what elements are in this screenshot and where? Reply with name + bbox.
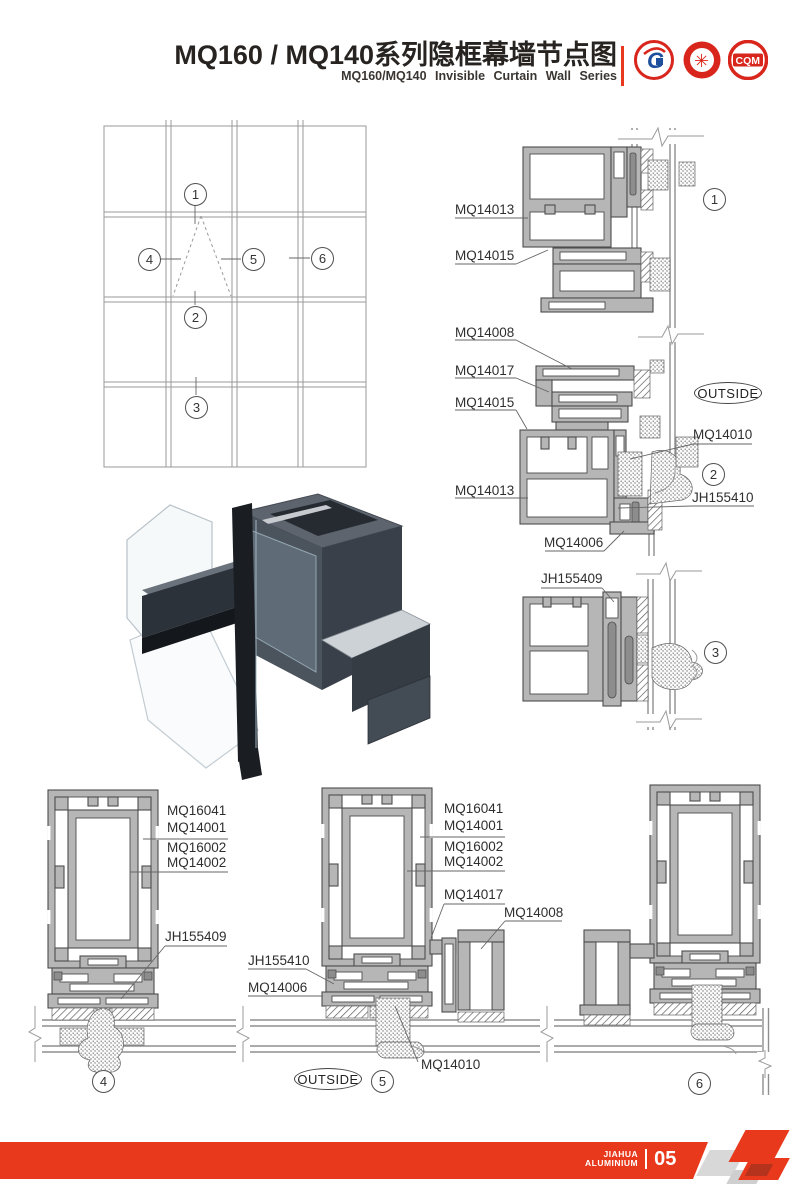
marker-number: 2	[192, 310, 199, 325]
label-d2-mq14010: MQ14010	[693, 428, 752, 442]
label-d2-jh155410: JH155410	[692, 491, 754, 505]
section-marker-5: 5	[371, 1070, 394, 1093]
label-d5-mq16002: MQ16002	[444, 840, 503, 854]
label-d4-mq14002: MQ14002	[167, 856, 226, 870]
label-d2-mq14017: MQ14017	[455, 364, 514, 378]
product-photo	[127, 494, 430, 780]
marker-number: 4	[100, 1074, 107, 1089]
detail-5-drawing	[248, 788, 562, 1062]
marker-number: 3	[193, 400, 200, 415]
catalog-page: MQ160 / MQ140系列隐框幕墙节点图 MQ160/MQ140 Invis…	[0, 0, 800, 1200]
marker-number: 1	[711, 192, 718, 207]
marker-number: 1	[192, 187, 199, 202]
label-d2-mq14006: MQ14006	[544, 536, 603, 550]
drawing-canvas: .al{fill:#b6b6b6;stroke:#4d4d4d;stroke-w…	[0, 0, 800, 1200]
label-d5-mq14001: MQ14001	[444, 819, 503, 833]
label-d5-jh155410: JH155410	[248, 954, 310, 968]
section-marker-4: 4	[92, 1070, 115, 1093]
label-d2-mq14008: MQ14008	[455, 326, 514, 340]
footer-brand-name: JIAHUA ALUMINIUM	[585, 1150, 638, 1168]
section-marker-1: 1	[703, 188, 726, 211]
marker-number: 2	[710, 467, 717, 482]
label-d5-mq14010: MQ14010	[421, 1058, 480, 1072]
section-marker-2: 2	[702, 463, 725, 486]
section-marker-3: 3	[704, 641, 727, 664]
label-d5-mq14017: MQ14017	[444, 888, 503, 902]
brand-line-2: ALUMINIUM	[585, 1159, 638, 1168]
label-d4-mq14001: MQ14001	[167, 821, 226, 835]
detail-6-drawing	[580, 785, 761, 1054]
label-d5-mq14006: MQ14006	[248, 981, 307, 995]
label-d3-jh155409: JH155409	[541, 572, 603, 586]
footer-divider	[645, 1149, 647, 1169]
elevation-drawing	[104, 120, 366, 467]
marker-number: 3	[712, 645, 719, 660]
label-d5-mq14002: MQ14002	[444, 855, 503, 869]
label-d5-mq14008: MQ14008	[504, 906, 563, 920]
label-d4-mq16041: MQ16041	[167, 804, 226, 818]
label-d5-mq16041: MQ16041	[444, 802, 503, 816]
marker-number: 6	[319, 251, 326, 266]
footer-brand-block: JIAHUA ALUMINIUM 05	[585, 1149, 676, 1169]
outside-label-lower: OUTSIDE	[294, 1068, 362, 1090]
marker-number: 5	[379, 1074, 386, 1089]
label-d1-mq14015: MQ14015	[455, 249, 514, 263]
section-marker-6: 6	[688, 1072, 711, 1095]
elevation-marker-4: 4	[138, 248, 161, 271]
marker-number: 4	[146, 252, 153, 267]
label-d4-jh155409: JH155409	[165, 930, 227, 944]
label-d1-mq14013: MQ14013	[455, 203, 514, 217]
marker-number: 6	[696, 1076, 703, 1091]
elevation-marker-3: 3	[185, 396, 208, 419]
outside-label-upper: OUTSIDE	[694, 382, 762, 404]
marker-number: 5	[250, 252, 257, 267]
elevation-marker-6: 6	[311, 247, 334, 270]
elevation-marker-1: 1	[184, 183, 207, 206]
detail-1-drawing	[455, 147, 695, 312]
elevation-marker-2: 2	[184, 306, 207, 329]
page-number: 05	[654, 1149, 676, 1169]
label-d2-mq14015: MQ14015	[455, 396, 514, 410]
label-d2-mq14013: MQ14013	[455, 484, 514, 498]
elevation-marker-5: 5	[242, 248, 265, 271]
label-d4-mq16002: MQ16002	[167, 841, 226, 855]
